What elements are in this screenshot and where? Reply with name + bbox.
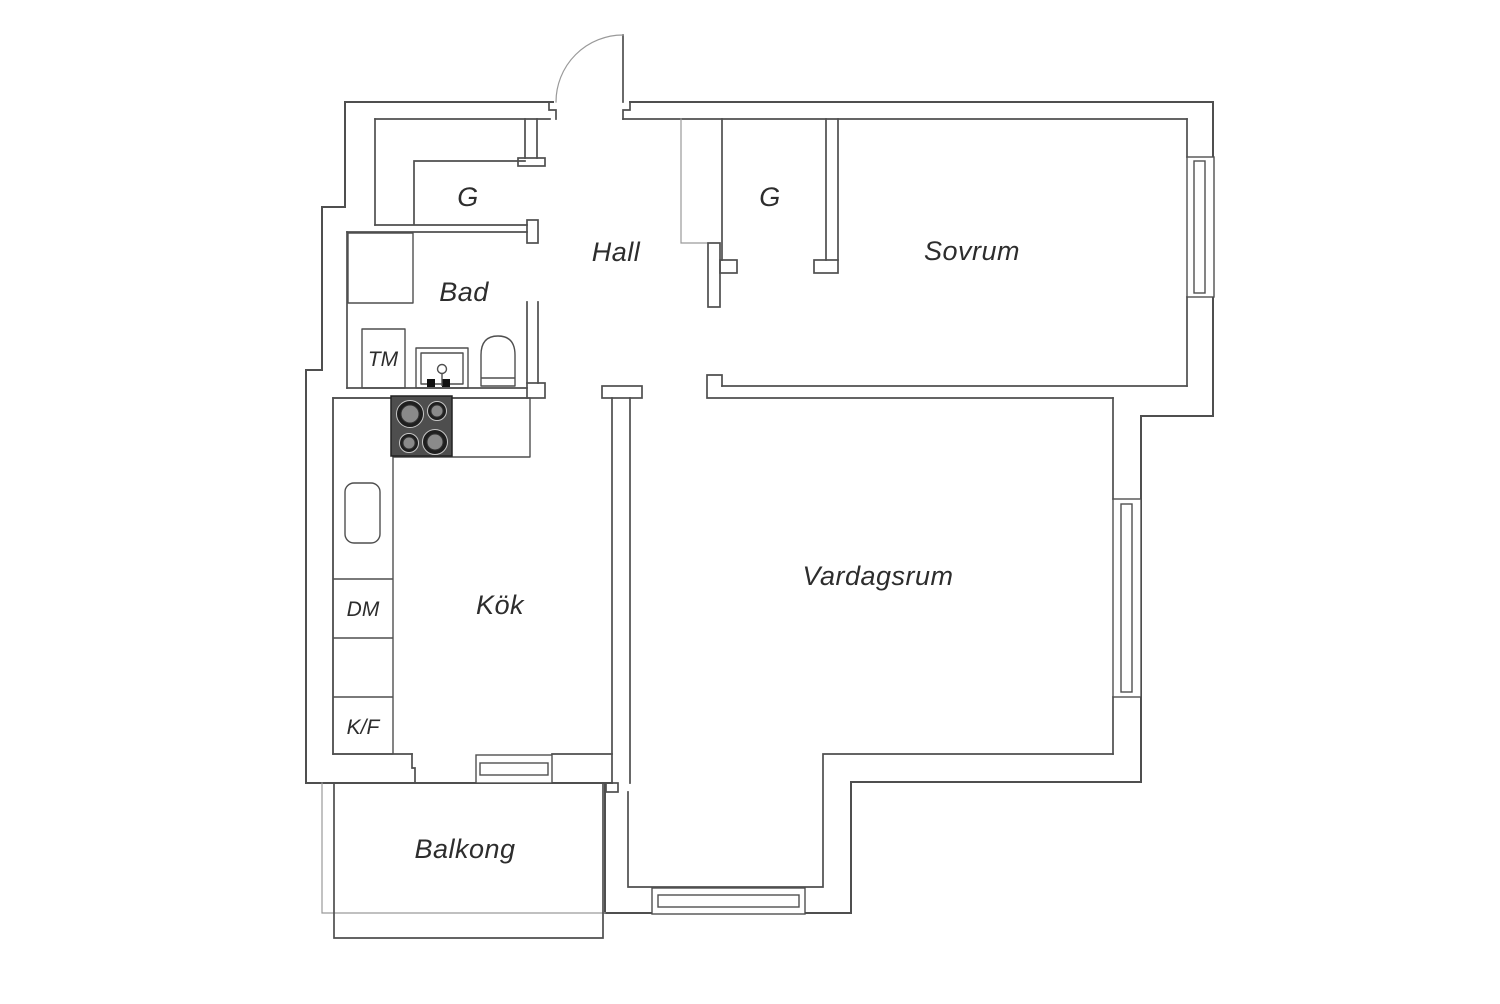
floor-plan-canvas: G G Hall Bad Sovrum Kök Vardagsrum Balko…: [0, 0, 1500, 1004]
burner: [400, 434, 419, 453]
bathroom-sink-icon: [416, 348, 468, 388]
divider-wall: [612, 398, 630, 783]
floor-plan-drawing: G G Hall Bad Sovrum Kök Vardagsrum Balko…: [0, 0, 1500, 1004]
bedroom-label: Sovrum: [924, 236, 1020, 266]
closet-wall: [525, 119, 537, 158]
door-jamb: [720, 260, 737, 273]
exterior-walls: [306, 102, 1213, 913]
door-jamb: [549, 102, 556, 119]
bathroom-label: Bad: [439, 277, 489, 307]
stove-icon: [391, 396, 452, 456]
window-icon: [476, 755, 552, 783]
room-labels: G G Hall Bad Sovrum Kök Vardagsrum Balko…: [347, 182, 1020, 864]
burner: [423, 430, 448, 455]
bathroom-wall: [527, 302, 538, 383]
wall-segment: [628, 754, 1113, 887]
dishwasher-label: DM: [347, 598, 380, 621]
shower-cabinet: [348, 233, 413, 303]
door-jamb: [518, 158, 545, 166]
kitchen-fixtures: [333, 396, 530, 754]
closet-wall: [826, 119, 838, 260]
entrance-door: [549, 35, 630, 119]
door-jamb: [814, 260, 838, 273]
living-room-label: Vardagsrum: [802, 561, 953, 591]
window-icon: [652, 888, 805, 914]
closet-label: G: [457, 182, 479, 212]
kitchen-counter: [333, 398, 393, 754]
fridge-freezer-label: K/F: [347, 716, 381, 739]
windows: [476, 157, 1214, 914]
window-icon: [1187, 157, 1214, 297]
wall-cap: [602, 386, 642, 398]
wall-segment: [412, 754, 415, 783]
door-jamb: [623, 102, 630, 119]
toilet-icon: [481, 336, 515, 386]
window-icon: [1113, 499, 1141, 697]
counter-divider: [333, 579, 393, 697]
hall-niche-line: [681, 119, 708, 243]
burner: [428, 402, 447, 421]
hall-label: Hall: [592, 237, 641, 267]
kitchen-label: Kök: [476, 590, 525, 620]
door-jamb: [527, 220, 538, 243]
balcony-label: Balkong: [414, 834, 515, 864]
door-swing-arc: [556, 35, 623, 102]
kitchen-sink-icon: [345, 483, 380, 543]
burner: [397, 401, 424, 428]
interior-walls: [333, 119, 1187, 792]
closet-wall: [375, 161, 527, 225]
door-jamb: [606, 783, 618, 792]
washing-machine-label: TM: [368, 348, 399, 371]
door-jamb: [527, 383, 545, 398]
closet-wall: [708, 243, 720, 307]
closet-label: G: [759, 182, 781, 212]
